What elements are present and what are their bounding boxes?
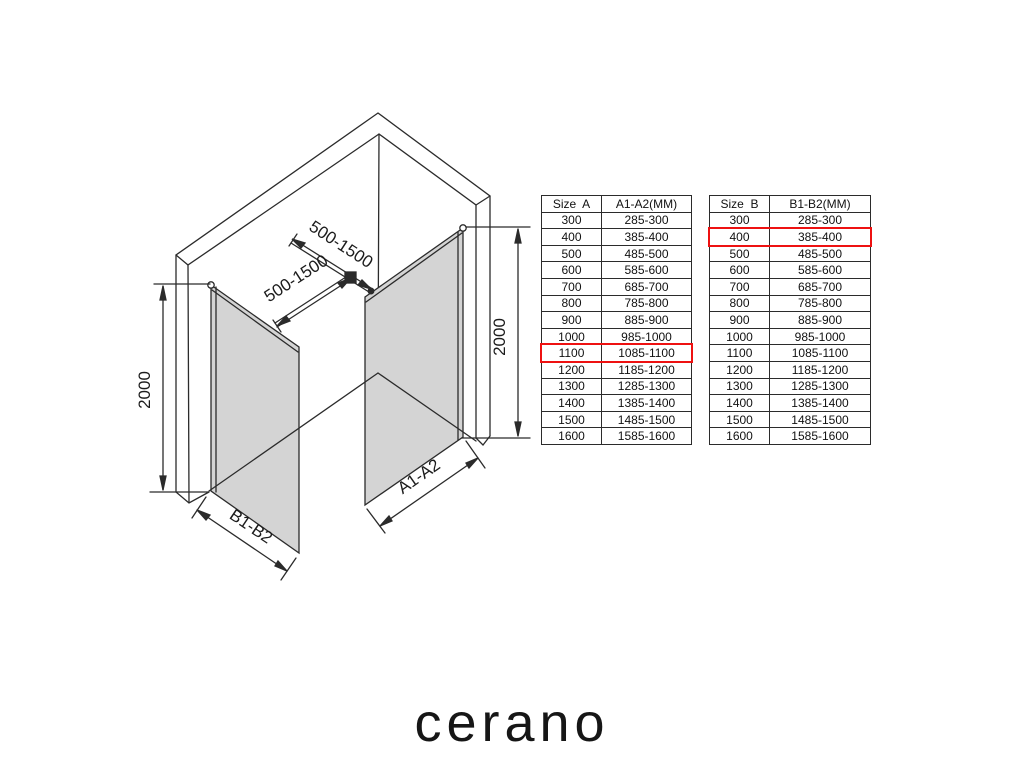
table-row: 800785-800 (542, 295, 691, 312)
table-cell: 1285-1300 (602, 379, 691, 395)
label-bar-lower: 500-1500 (261, 251, 332, 306)
table-cell: 1285-1300 (770, 379, 870, 395)
table-cell: 1600 (710, 428, 770, 444)
table-cell: 785-800 (602, 296, 691, 312)
table-cell: 885-900 (602, 312, 691, 328)
table-cell: 800 (710, 296, 770, 312)
dimension-height-left (150, 284, 210, 492)
table-cell: 1385-1400 (602, 395, 691, 411)
table-row: 600585-600 (542, 261, 691, 278)
wall-edge-right-top (476, 196, 490, 205)
table-cell: 785-800 (770, 296, 870, 312)
table-cell: 1400 (710, 395, 770, 411)
table-cell: 1485-1500 (770, 412, 870, 428)
table-cell: 1185-1200 (602, 362, 691, 378)
table-cell: 1000 (710, 329, 770, 345)
size-table-b: Size B B1-B2(MM) 300285-300400385-400500… (709, 195, 871, 445)
table-row: 15001485-1500 (542, 411, 691, 428)
table-cell: 385-400 (602, 229, 691, 245)
table-cell: 700 (710, 279, 770, 295)
table-cell: 1600 (542, 428, 602, 444)
table-header-row: Size A A1-A2(MM) (542, 196, 691, 212)
table-row: 600585-600 (710, 261, 870, 278)
table-cell: 1400 (542, 395, 602, 411)
table-cell: 1085-1100 (770, 345, 870, 361)
table-cell: 685-700 (602, 279, 691, 295)
size-table-a: Size A A1-A2(MM) 300285-300400385-400500… (541, 195, 692, 445)
table-header-cell: Size A (542, 196, 602, 212)
anchor-dot-right (460, 225, 466, 231)
label-height-right: 2000 (490, 318, 509, 356)
table-cell: 485-500 (602, 246, 691, 262)
table-cell: 1585-1600 (602, 428, 691, 444)
product-spec-sheet: 2000 2000 500-1500 500-1500 B1-B2 A1-A2 … (0, 0, 1024, 768)
table-cell: 1500 (542, 412, 602, 428)
table-cell: 1300 (542, 379, 602, 395)
table-cell: 900 (542, 312, 602, 328)
table-row: 11001085-1100 (542, 344, 691, 361)
table-cell: 385-400 (770, 229, 870, 245)
table-cell: 500 (542, 246, 602, 262)
table-row: 300285-300 (710, 212, 870, 229)
table-cell: 285-300 (602, 213, 691, 229)
table-cell: 1585-1600 (770, 428, 870, 444)
table-row: 300285-300 (542, 212, 691, 229)
table-row: 500485-500 (710, 245, 870, 262)
table-row: 400385-400 (710, 228, 870, 245)
glass-panel-left (211, 285, 299, 553)
table-cell: 585-600 (770, 262, 870, 278)
label-height-left: 2000 (135, 371, 154, 409)
table-row: 13001285-1300 (710, 378, 870, 395)
table-cell: 600 (542, 262, 602, 278)
table-header-cell: Size B (710, 196, 770, 212)
table-header-cell: B1-B2(MM) (770, 196, 870, 212)
table-cell: 585-600 (602, 262, 691, 278)
wall-edge-left-top (176, 255, 188, 265)
table-row: 12001185-1200 (542, 361, 691, 378)
table-cell: 1500 (710, 412, 770, 428)
table-cell: 1100 (710, 345, 770, 361)
table-cell: 1200 (542, 362, 602, 378)
table-cell: 1200 (710, 362, 770, 378)
table-cell: 1385-1400 (770, 395, 870, 411)
table-cell: 400 (710, 229, 770, 245)
table-cell: 700 (542, 279, 602, 295)
table-cell: 1485-1500 (602, 412, 691, 428)
table-row: 14001385-1400 (542, 394, 691, 411)
bar-upper-arrow-left (292, 239, 305, 248)
glass-panels (211, 228, 463, 553)
table-header-row: Size B B1-B2(MM) (710, 196, 870, 212)
table-row: 11001085-1100 (710, 344, 870, 361)
table-cell: 1100 (542, 345, 602, 361)
table-row: 16001585-1600 (542, 427, 691, 444)
table-cell: 800 (542, 296, 602, 312)
table-row: 900885-900 (542, 311, 691, 328)
table-header-cell: A1-A2(MM) (602, 196, 691, 212)
table-row: 400385-400 (542, 228, 691, 245)
table-cell: 285-300 (770, 213, 870, 229)
table-row: 1000985-1000 (542, 328, 691, 345)
table-cell: 1300 (710, 379, 770, 395)
table-row: 500485-500 (542, 245, 691, 262)
table-cell: 400 (542, 229, 602, 245)
anchor-dot-left (208, 282, 214, 288)
table-row: 16001585-1600 (710, 427, 870, 444)
bar-lower-wall-bracket (345, 272, 356, 283)
table-cell: 1185-1200 (770, 362, 870, 378)
table-row: 12001185-1200 (710, 361, 870, 378)
table-cell: 685-700 (770, 279, 870, 295)
table-cell: 1000 (542, 329, 602, 345)
table-row: 13001285-1300 (542, 378, 691, 395)
table-cell: 1085-1100 (602, 345, 691, 361)
wall-bottom-left (176, 492, 209, 503)
table-cell: 485-500 (770, 246, 870, 262)
table-cell: 500 (710, 246, 770, 262)
table-row: 14001385-1400 (710, 394, 870, 411)
table-cell: 985-1000 (770, 329, 870, 345)
table-cell: 300 (710, 213, 770, 229)
table-row: 800785-800 (710, 295, 870, 312)
table-cell: 300 (542, 213, 602, 229)
table-cell: 885-900 (770, 312, 870, 328)
table-row: 15001485-1500 (710, 411, 870, 428)
bar-upper-connector (368, 288, 374, 294)
table-cell: 985-1000 (602, 329, 691, 345)
table-row: 700685-700 (542, 278, 691, 295)
table-cell: 600 (710, 262, 770, 278)
table-row: 700685-700 (710, 278, 870, 295)
brand-logo: cerano (0, 692, 1024, 754)
glass-panel-right (365, 228, 463, 505)
table-cell: 900 (710, 312, 770, 328)
table-row: 900885-900 (710, 311, 870, 328)
table-row: 1000985-1000 (710, 328, 870, 345)
